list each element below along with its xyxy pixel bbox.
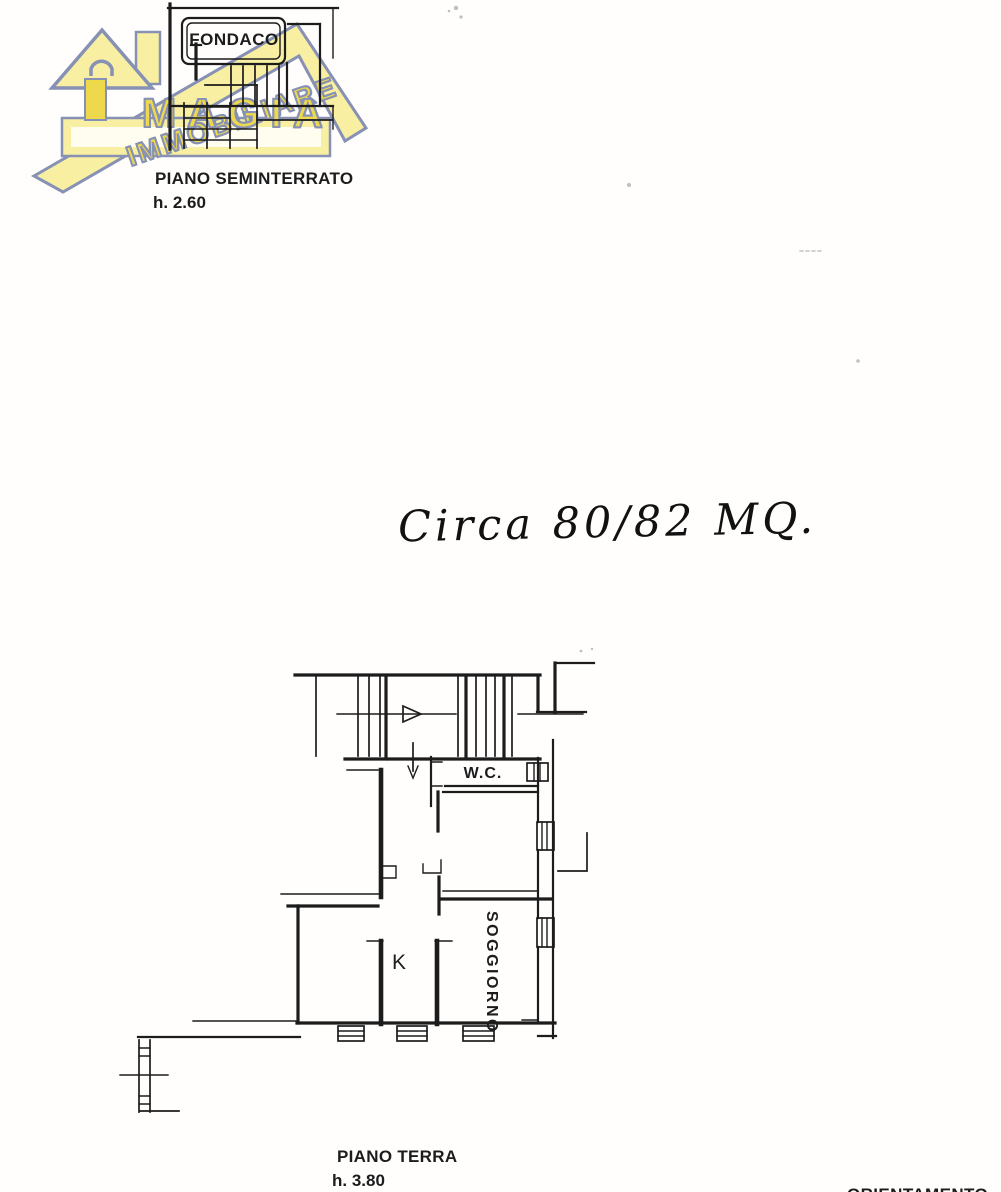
seminterrato-title: PIANO SEMINTERRATO — [155, 169, 353, 189]
wc-room-label: W.C. — [455, 765, 511, 783]
living-room-label: SOGGIORNO — [482, 911, 500, 1034]
exterior-stair — [120, 1040, 179, 1112]
basement-plan-linework — [168, 4, 338, 149]
orientation-label: ORIENTAMENTO — [847, 1185, 988, 1192]
terra-title: PIANO TERRA — [337, 1147, 457, 1167]
ground-floor-plan-linework — [120, 663, 594, 1112]
handwritten-area-note: Circa 80/82 MQ. — [398, 494, 818, 553]
living-window — [537, 918, 554, 947]
terra-height: h. 3.80 — [332, 1171, 385, 1191]
kitchen-room-label: K — [392, 951, 406, 975]
bottom-window-1 — [338, 1026, 364, 1041]
scanned-floorplan-page: IMMOBILIARE MAGIA — [0, 0, 1001, 1192]
bedroom-window — [537, 822, 554, 850]
scan-artifacts — [448, 6, 860, 653]
seminterrato-height: h. 2.60 — [153, 193, 206, 213]
balcony-wall-fragment — [558, 833, 587, 871]
stair-direction-arrow — [337, 706, 583, 722]
bottom-window-2 — [397, 1026, 427, 1041]
fondaco-room-label: FONDACO — [182, 30, 286, 50]
